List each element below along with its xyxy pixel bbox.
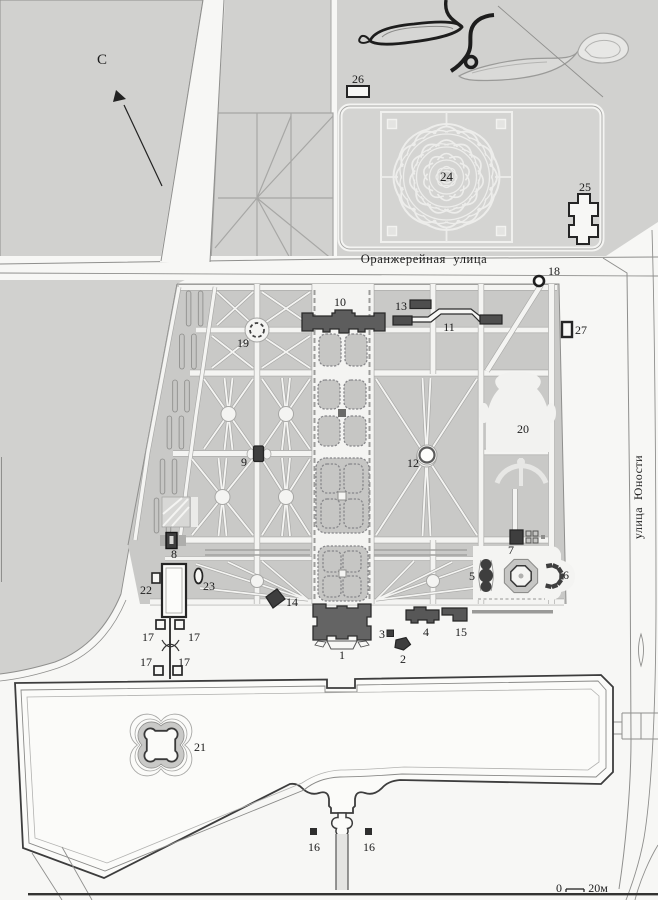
svg-text:27: 27 [575, 323, 587, 337]
svg-text:Оранжерейная улица: Оранжерейная улица [361, 252, 488, 266]
svg-text:26: 26 [352, 72, 364, 86]
svg-text:С: С [97, 52, 107, 68]
svg-text:1: 1 [339, 648, 345, 662]
svg-text:13: 13 [395, 299, 407, 313]
svg-text:16: 16 [363, 840, 375, 854]
svg-text:9: 9 [241, 455, 247, 469]
svg-text:улица Юности: улица Юности [631, 455, 645, 539]
svg-text:17: 17 [142, 630, 154, 644]
svg-text:8: 8 [171, 547, 177, 561]
svg-text:17: 17 [178, 655, 190, 669]
svg-text:14: 14 [286, 595, 298, 609]
svg-text:3: 3 [379, 627, 385, 641]
svg-text:24: 24 [440, 169, 454, 184]
svg-text:7: 7 [508, 543, 514, 557]
svg-text:5: 5 [469, 569, 475, 583]
svg-text:12: 12 [407, 456, 419, 470]
svg-text:16: 16 [308, 840, 320, 854]
svg-text:22: 22 [140, 583, 152, 597]
svg-text:15: 15 [455, 625, 467, 639]
svg-text:20: 20 [517, 422, 529, 436]
svg-text:25: 25 [579, 180, 591, 194]
svg-text:20м: 20м [588, 881, 608, 895]
svg-text:17: 17 [188, 630, 200, 644]
svg-text:18: 18 [548, 264, 560, 278]
svg-text:21: 21 [194, 740, 206, 754]
svg-text:11: 11 [443, 320, 455, 334]
svg-text:2: 2 [400, 652, 406, 666]
svg-text:17: 17 [140, 655, 152, 669]
svg-text:4: 4 [423, 625, 429, 639]
svg-text:0: 0 [556, 881, 562, 895]
svg-text:19: 19 [237, 336, 249, 350]
svg-text:23: 23 [203, 579, 215, 593]
svg-text:10: 10 [334, 295, 346, 309]
svg-text:6: 6 [563, 568, 569, 582]
